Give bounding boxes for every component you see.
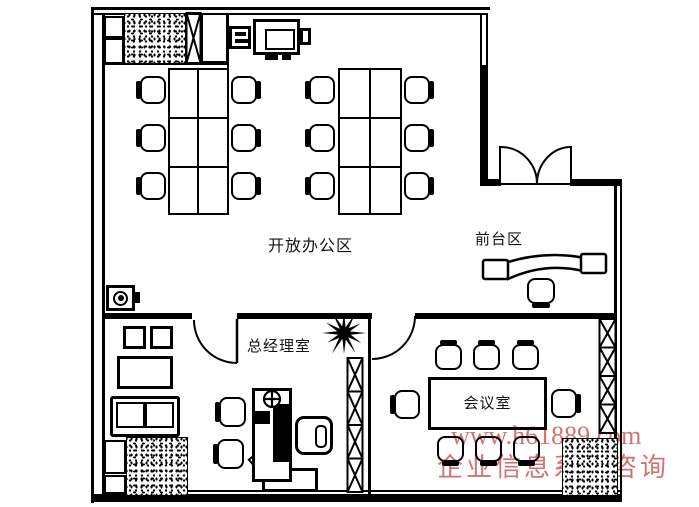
copier-side-tab — [300, 28, 311, 45]
gm-door-arc — [194, 320, 237, 363]
chair-icon — [140, 124, 166, 152]
cabinet-cell — [201, 13, 228, 63]
structural-column-hatched — [126, 437, 188, 496]
office-floor-plan: 开放办公区 前台区 总经理室 会议室 — [0, 0, 699, 507]
cabinet-cell — [104, 38, 124, 64]
plant-icon — [322, 313, 366, 354]
gm-desk — [252, 388, 292, 482]
chair-icon — [404, 172, 430, 200]
chair-icon — [394, 390, 420, 419]
cabinet-cell — [104, 475, 126, 494]
executive-chair-icon — [295, 416, 333, 455]
room-label-open-office: 开放办公区 — [268, 239, 353, 255]
chair-icon — [309, 76, 335, 104]
room-label-reception: 前台区 — [475, 232, 523, 247]
chair-icon — [231, 124, 257, 152]
wall-mid-c — [415, 313, 616, 319]
x-braced-column-mid — [348, 358, 363, 492]
camera-mount — [135, 292, 140, 303]
meeting-door-arc — [372, 316, 415, 359]
chair-icon — [473, 344, 500, 370]
entry-door-arc-left — [501, 147, 537, 184]
chair-icon — [551, 389, 577, 418]
side-table — [123, 326, 146, 349]
camera-icon — [106, 285, 135, 311]
entry-door-panel-right — [570, 146, 572, 184]
chair-icon — [217, 439, 244, 469]
desk-cluster-1 — [168, 68, 229, 215]
copier-body — [253, 19, 300, 55]
structural-column-hatched — [562, 438, 618, 496]
coffee-table — [117, 356, 173, 389]
entry-door-arc-right — [537, 147, 571, 184]
desk-cluster-2 — [338, 68, 402, 215]
chair-icon — [404, 124, 430, 152]
wall-mid-b — [237, 313, 372, 319]
room-label-gm-office: 总经理室 — [247, 339, 311, 354]
wall-gm-meeting-divider — [368, 319, 371, 495]
watermark-slogan: 企业信息系统咨询 — [437, 447, 669, 484]
side-table — [150, 326, 173, 349]
copier-icon — [229, 16, 313, 62]
chair-icon — [231, 172, 257, 200]
entry-door-panel-left — [499, 146, 501, 184]
cabinet-cell — [104, 16, 124, 38]
chair-icon — [140, 172, 166, 200]
sofa-icon — [110, 396, 180, 437]
x-braced-column-topleft — [187, 13, 201, 63]
wall-right-upper-a — [480, 13, 482, 67]
chair-icon — [231, 76, 257, 104]
chair-icon — [309, 124, 335, 152]
chair-icon — [309, 172, 335, 200]
chair-icon — [512, 344, 539, 370]
cabinet-cell — [104, 440, 126, 474]
wall-entry-sill-left — [480, 179, 501, 186]
room-label-meeting: 会议室 — [463, 396, 511, 411]
chair-icon — [219, 397, 246, 427]
wall-right-upper-thick — [480, 65, 488, 181]
wall-entry-sill-right — [570, 179, 622, 186]
copier-tray — [229, 26, 251, 49]
structural-column-hatched — [124, 13, 186, 64]
chair-icon — [435, 344, 462, 370]
reception-counter — [483, 254, 606, 279]
wall-left-outer — [91, 7, 94, 503]
chair-icon — [404, 76, 430, 104]
wall-left-inner — [102, 13, 105, 498]
wall-right-upper-b — [486, 13, 488, 67]
chair-icon — [140, 76, 166, 104]
entry-threshold — [501, 183, 570, 185]
wall-mid-a — [102, 313, 192, 319]
chair-icon — [527, 278, 555, 304]
wall-top-outer — [91, 7, 490, 10]
